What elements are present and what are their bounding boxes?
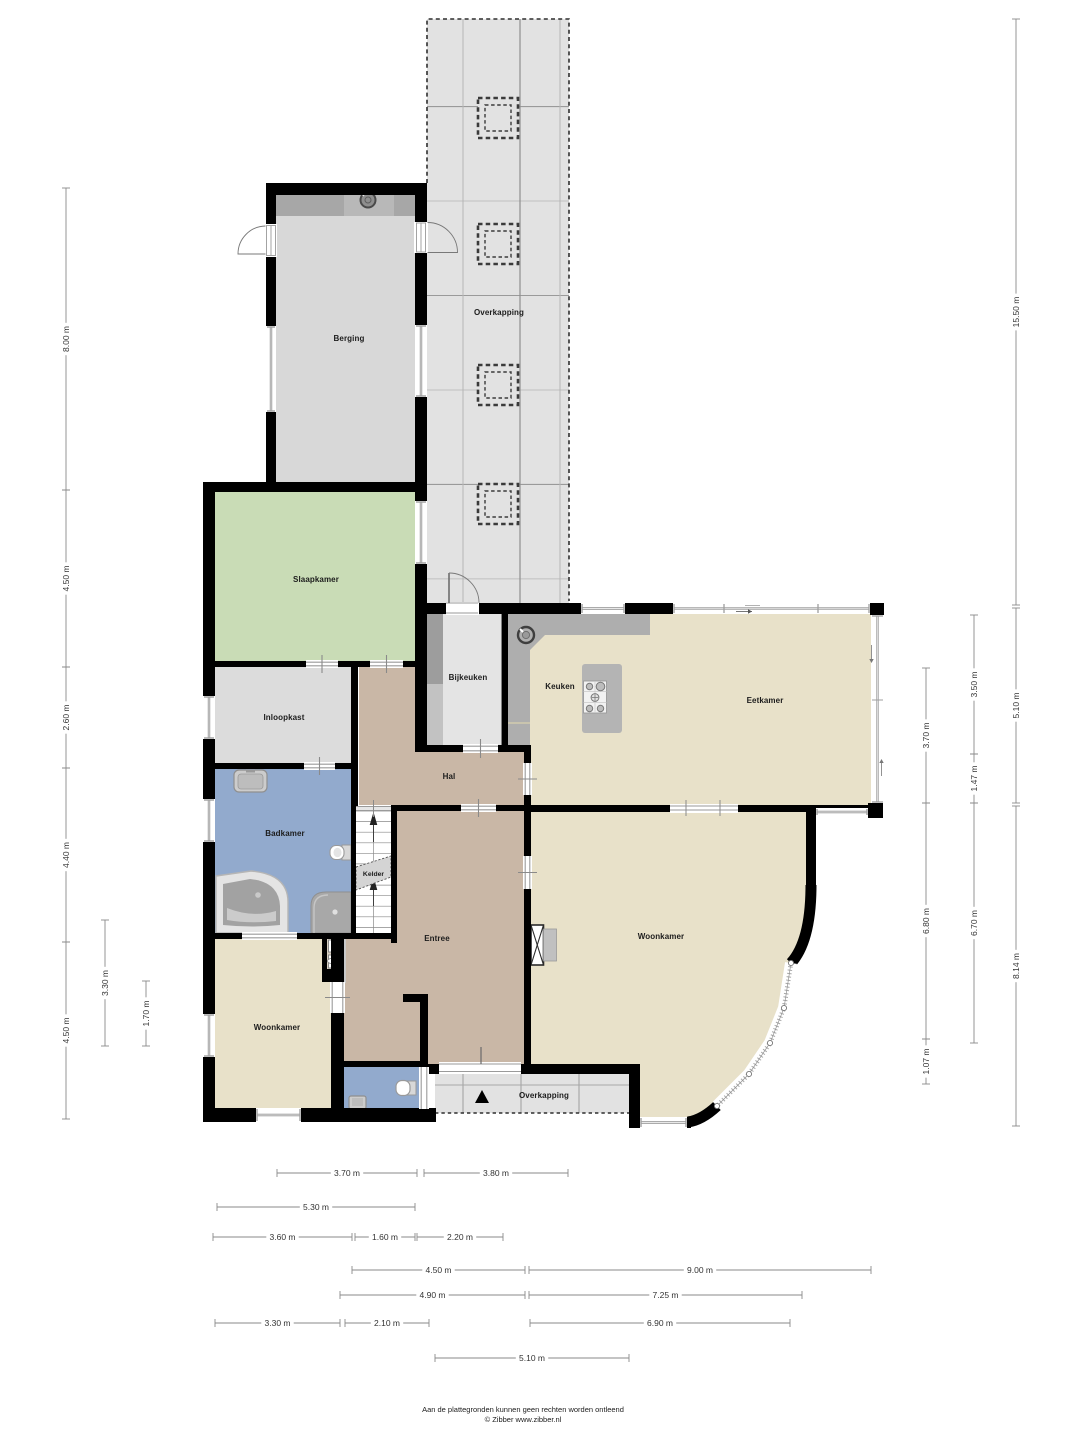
svg-text:3.30 m: 3.30 m	[265, 1318, 291, 1328]
svg-text:8.00 m: 8.00 m	[61, 326, 71, 352]
svg-text:2.10 m: 2.10 m	[374, 1318, 400, 1328]
svg-text:4.40 m: 4.40 m	[61, 842, 71, 868]
svg-text:6.70 m: 6.70 m	[969, 910, 979, 936]
svg-text:1.60 m: 1.60 m	[372, 1232, 398, 1242]
svg-text:9.00 m: 9.00 m	[687, 1265, 713, 1275]
svg-text:4.50 m: 4.50 m	[426, 1265, 452, 1275]
svg-text:2.60 m: 2.60 m	[61, 705, 71, 731]
svg-text:Slaapkamer: Slaapkamer	[293, 575, 339, 584]
svg-text:1.70 m: 1.70 m	[141, 1001, 151, 1027]
svg-text:5.10 m: 5.10 m	[519, 1353, 545, 1363]
svg-text:Badkamer: Badkamer	[265, 829, 305, 838]
svg-text:Aan de plattegronden kunnen ge: Aan de plattegronden kunnen geen rechten…	[422, 1405, 624, 1414]
svg-text:Keuken: Keuken	[545, 682, 575, 691]
svg-text:3.70 m: 3.70 m	[921, 723, 931, 749]
svg-text:Kelder: Kelder	[363, 871, 385, 878]
svg-text:Overkapping: Overkapping	[474, 308, 524, 317]
svg-text:3.30 m: 3.30 m	[100, 970, 110, 996]
svg-text:6.80 m: 6.80 m	[921, 908, 931, 934]
svg-text:1.47 m: 1.47 m	[969, 766, 979, 792]
svg-text:6.90 m: 6.90 m	[647, 1318, 673, 1328]
svg-text:7.25 m: 7.25 m	[653, 1290, 679, 1300]
svg-text:Hal: Hal	[443, 772, 456, 781]
svg-text:Eetkamer: Eetkamer	[747, 696, 784, 705]
svg-text:© Zibber www.zibber.nl: © Zibber www.zibber.nl	[485, 1415, 562, 1424]
svg-text:8.14 m: 8.14 m	[1011, 953, 1021, 979]
svg-text:1.07 m: 1.07 m	[921, 1049, 931, 1075]
svg-text:4.90 m: 4.90 m	[420, 1290, 446, 1300]
svg-text:5.10 m: 5.10 m	[1011, 693, 1021, 719]
svg-text:3.60 m: 3.60 m	[270, 1232, 296, 1242]
svg-text:5.30 m: 5.30 m	[303, 1202, 329, 1212]
svg-text:2.20 m: 2.20 m	[447, 1232, 473, 1242]
svg-text:Woonkamer: Woonkamer	[638, 932, 685, 941]
svg-text:3.70 m: 3.70 m	[334, 1168, 360, 1178]
svg-text:Bijkeuken: Bijkeuken	[449, 673, 488, 682]
svg-text:4.50 m: 4.50 m	[61, 566, 71, 592]
svg-text:4.50 m: 4.50 m	[61, 1018, 71, 1044]
svg-text:Berging: Berging	[334, 334, 365, 343]
svg-text:Inloopkast: Inloopkast	[263, 713, 304, 722]
svg-text:15.50 m: 15.50 m	[1011, 297, 1021, 328]
svg-text:3.80 m: 3.80 m	[483, 1168, 509, 1178]
svg-text:3.50 m: 3.50 m	[969, 672, 979, 698]
svg-text:Woonkamer: Woonkamer	[254, 1023, 301, 1032]
svg-text:Entree: Entree	[424, 934, 450, 943]
svg-text:Overkapping: Overkapping	[519, 1091, 569, 1100]
